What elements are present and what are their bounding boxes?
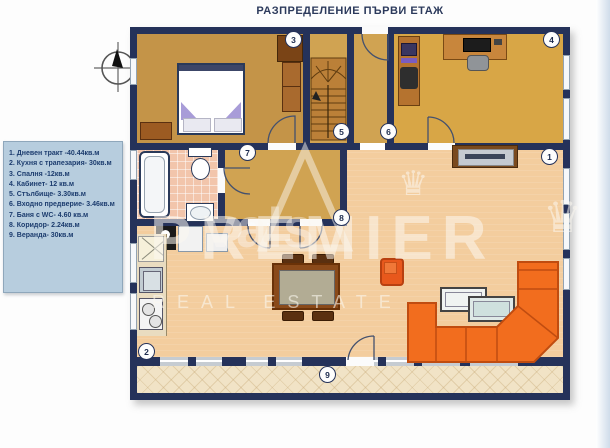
window — [563, 55, 570, 90]
wall — [460, 357, 470, 366]
legend-item: 6. Входно предверие- 3.46кв.м — [9, 200, 118, 210]
keyboard — [401, 58, 417, 63]
window — [563, 258, 570, 290]
office-chair — [400, 67, 418, 89]
bed — [177, 63, 245, 135]
wall — [303, 34, 310, 143]
livingroom-floor — [347, 150, 563, 357]
legend-item: 9. Веранда- 30кв.м — [9, 231, 118, 241]
wall — [268, 357, 276, 366]
burner — [142, 303, 155, 316]
page-title: РАЗПРЕДЕЛЕНИЕ ПЪРВИ ЕТАЖ — [130, 5, 570, 17]
wardrobe — [282, 62, 301, 112]
wall — [218, 150, 225, 168]
legend-item: 4. Кабинет- 12 кв.м — [9, 180, 118, 190]
floor-plan-page: РАЗПРЕДЕЛЕНИЕ ПЪРВИ ЕТАЖ 1. Дневен тракт… — [0, 0, 610, 448]
door-opening — [362, 27, 388, 34]
page-edge-strip — [596, 0, 610, 448]
room-marker-8: 8 — [333, 209, 350, 226]
room-marker-2: 2 — [138, 343, 155, 360]
floor-plan: 1 2 3 4 5 6 7 8 9 — [130, 27, 570, 400]
legend-item: 3. Спалня -12кв.м — [9, 170, 118, 180]
legend-item: 2. Кухня с трапезария- 30кв.м — [9, 159, 118, 169]
window — [130, 243, 137, 283]
wall — [130, 393, 570, 400]
door-opening — [346, 357, 374, 366]
desk-accessory — [494, 39, 502, 45]
wall — [270, 219, 300, 226]
kitchen-sink — [139, 267, 163, 293]
sink-basin — [190, 206, 211, 220]
kitchen-cabinet — [206, 233, 228, 252]
wall — [188, 357, 196, 366]
sink-basin — [143, 271, 161, 291]
office-chair — [467, 55, 489, 71]
wall — [518, 357, 563, 366]
door-opening — [248, 219, 270, 226]
room-marker-6: 6 — [380, 123, 397, 140]
legend-item: 8. Коридор- 2.24кв.м — [9, 221, 118, 231]
legend-list: 1. Дневен тракт -40.44кв.м 2. Кухня с тр… — [4, 142, 122, 242]
toilet-bowl — [191, 158, 210, 180]
room-marker-7: 7 — [239, 144, 256, 161]
dining-chair — [282, 311, 304, 321]
pillow — [214, 118, 242, 132]
tv-unit — [452, 145, 518, 168]
bathtub-basin — [144, 156, 165, 213]
corner-cabinet — [138, 236, 164, 262]
window — [130, 150, 137, 180]
soundbar — [465, 154, 505, 159]
wall — [296, 143, 360, 150]
pillow — [183, 118, 211, 132]
room-marker-9: 9 — [319, 366, 336, 383]
coffee-table — [468, 296, 515, 322]
wall — [378, 357, 386, 366]
wall — [302, 357, 346, 366]
door-opening — [268, 143, 296, 150]
burner — [149, 315, 162, 328]
wall — [222, 357, 246, 366]
legend-item: 5. Стълбище- 3.30кв.м — [9, 190, 118, 200]
monitor — [401, 43, 417, 56]
room-marker-5: 5 — [333, 123, 350, 140]
veranda-floor — [137, 366, 563, 393]
window — [130, 58, 137, 85]
door-opening — [428, 143, 455, 150]
room-marker-1: 1 — [541, 148, 558, 165]
bathtub — [139, 151, 170, 218]
door-opening — [300, 219, 322, 226]
room-marker-4: 4 — [543, 31, 560, 48]
dresser — [140, 122, 172, 140]
bed-headboard — [179, 65, 243, 71]
window — [563, 98, 570, 140]
door-opening — [218, 168, 225, 193]
stove — [139, 298, 163, 330]
table-glass — [473, 301, 510, 317]
fridge — [178, 226, 203, 252]
bathroom-sink — [186, 203, 214, 222]
room-marker-3: 3 — [285, 31, 302, 48]
armchair-cube — [380, 258, 404, 286]
wall — [414, 357, 422, 366]
legend-item: 1. Дневен тракт -40.44кв.м — [9, 149, 118, 159]
cushion — [384, 262, 397, 274]
laptop — [463, 38, 491, 52]
wall — [130, 27, 570, 34]
table-top — [279, 270, 335, 305]
dining-table — [272, 263, 340, 310]
wall — [385, 143, 428, 150]
toilet-tank — [188, 147, 212, 157]
legend-box: 1. Дневен тракт -40.44кв.м 2. Кухня с тр… — [3, 141, 123, 293]
window — [563, 213, 570, 250]
wardrobe-shelf — [283, 86, 300, 87]
dining-chair — [312, 311, 334, 321]
window — [130, 293, 137, 330]
legend-item: 7. Баня с WC- 4.60 кв.м — [9, 211, 118, 221]
window — [563, 168, 570, 205]
corridor-floor — [225, 150, 340, 226]
